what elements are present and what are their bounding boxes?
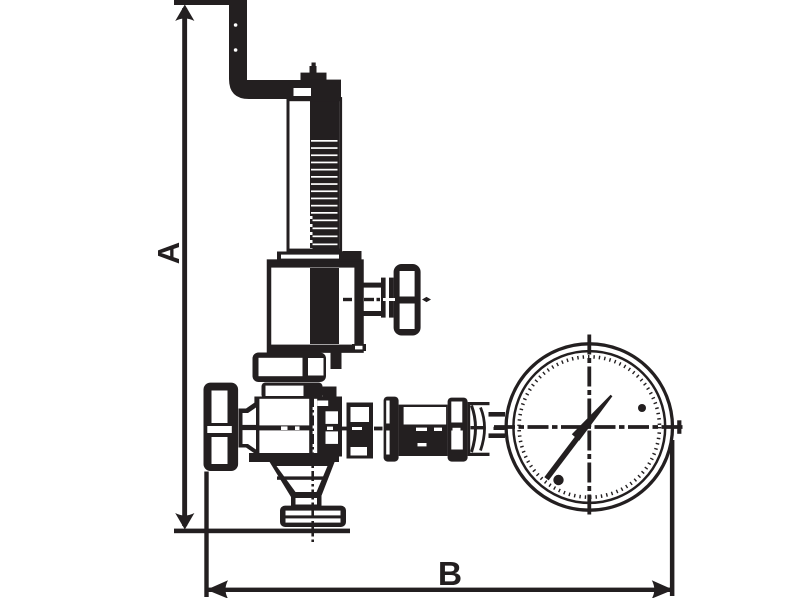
- svg-text:A: A: [151, 242, 186, 264]
- svg-text:B: B: [438, 556, 462, 593]
